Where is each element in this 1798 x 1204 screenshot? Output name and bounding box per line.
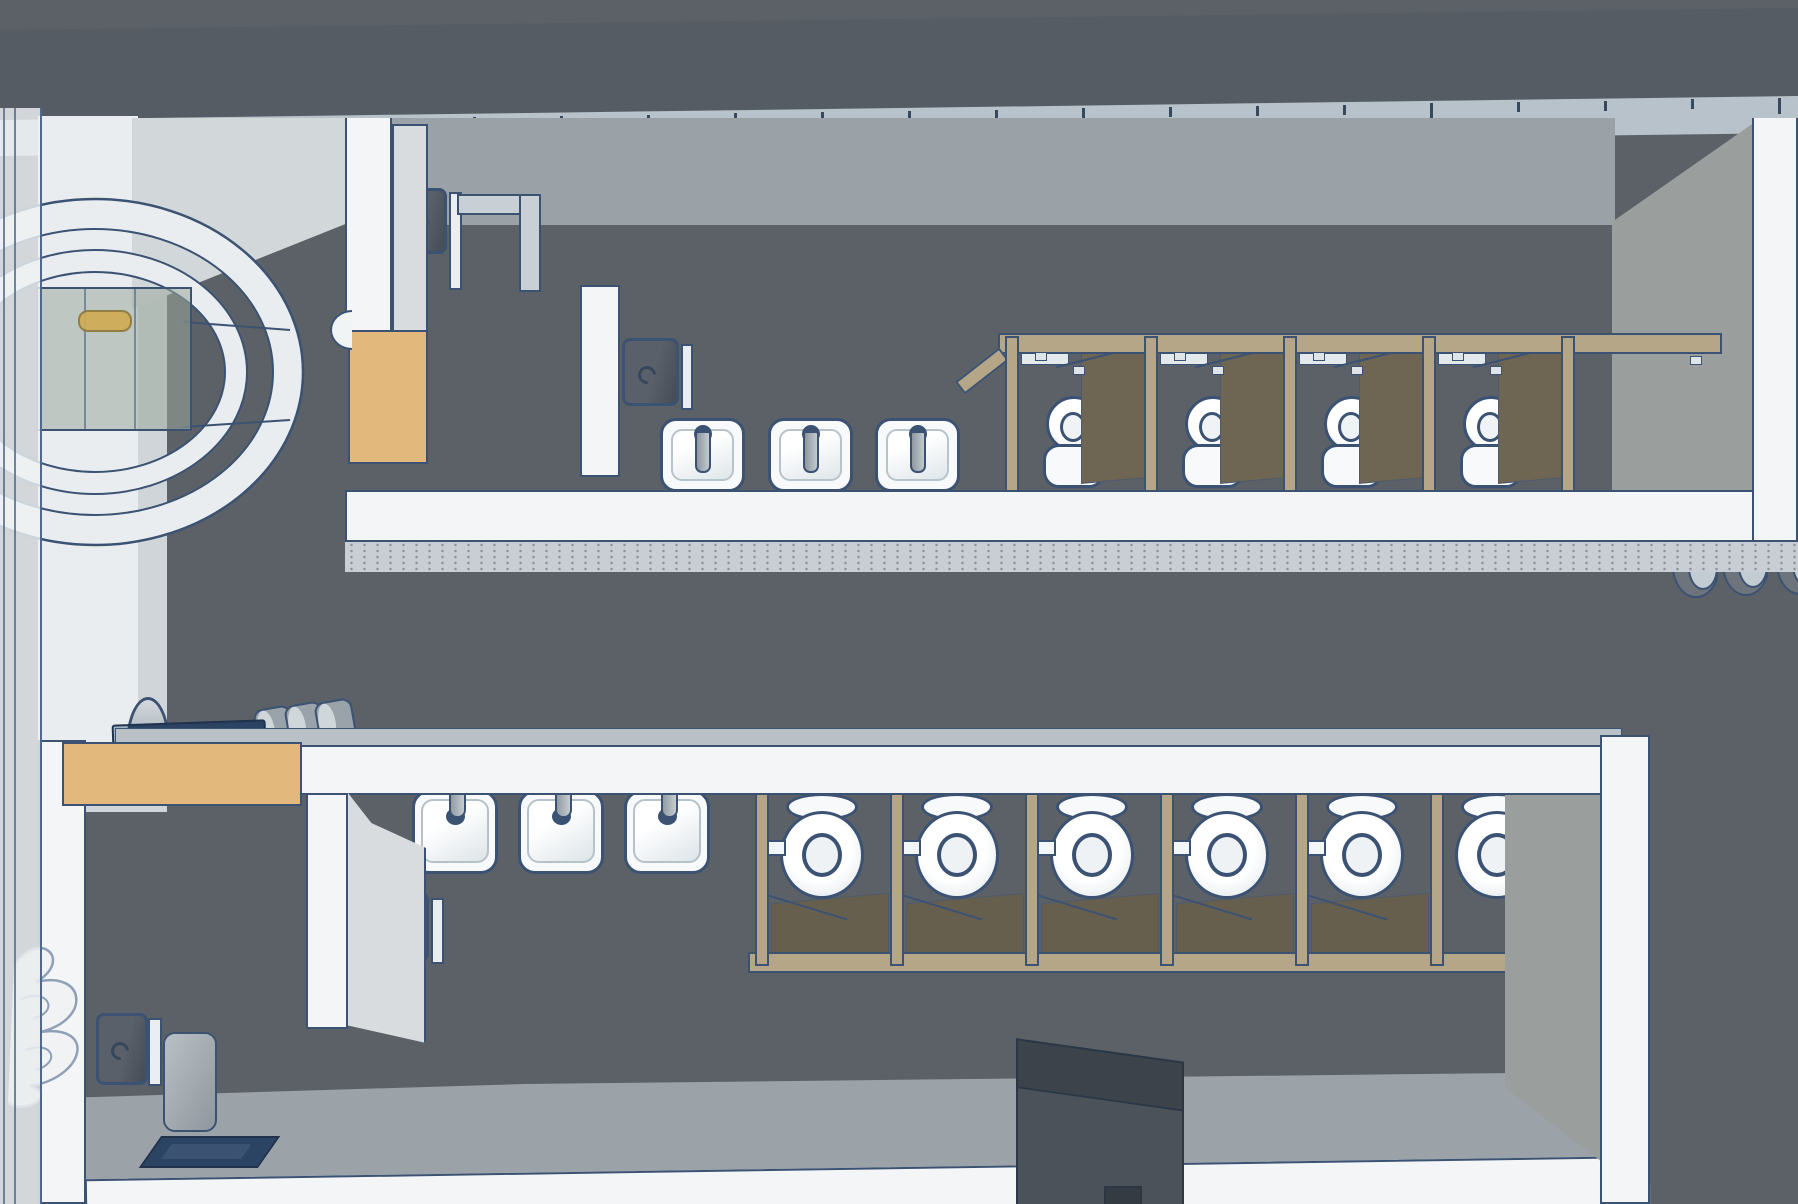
top-room-partition[interactable]: [580, 285, 620, 477]
toilet[interactable]: [1048, 793, 1136, 913]
stall-post[interactable]: [1025, 766, 1039, 966]
glass-front-column[interactable]: [0, 108, 42, 1204]
dryer-mount-panel: [148, 1018, 162, 1086]
toilet[interactable]: [913, 793, 1001, 913]
counter-support-wall[interactable]: [306, 793, 348, 1029]
top-room-left-wall[interactable]: [345, 118, 392, 332]
dryer-mount-panel: [431, 898, 444, 964]
yellow-handle[interactable]: [78, 310, 132, 332]
toilet-paper-holder[interactable]: [1172, 840, 1191, 856]
bottom-room-right-wall[interactable]: [1600, 735, 1650, 1204]
bottom-room-top-wall[interactable]: [300, 745, 1622, 795]
tan-locker-panel[interactable]: [348, 330, 428, 464]
toilet-paper-holder[interactable]: [1037, 840, 1056, 856]
model-viewport: [0, 0, 1798, 1204]
top-room-left-wall-side: [392, 124, 428, 332]
toilet-paper-holder[interactable]: [1307, 840, 1326, 856]
top-room-front-wall[interactable]: [345, 490, 1798, 542]
stall-post[interactable]: [890, 766, 904, 966]
top-room-right-wall[interactable]: [1752, 118, 1798, 542]
storage-box-notch: [1104, 1186, 1142, 1204]
floor-mat[interactable]: [139, 1136, 280, 1168]
toilet-paper-holder[interactable]: [767, 840, 786, 856]
top-room-outer-ledge: [345, 542, 1798, 572]
tan-counter[interactable]: [62, 742, 302, 806]
stall-post[interactable]: [1160, 766, 1174, 966]
toilet-paper-holder[interactable]: [902, 840, 921, 856]
stall-post[interactable]: [755, 766, 769, 966]
toilet[interactable]: [1183, 793, 1271, 913]
toilet[interactable]: [1318, 793, 1406, 913]
stall-post[interactable]: [1295, 766, 1309, 966]
toilet[interactable]: [778, 793, 866, 913]
gray-bin[interactable]: [163, 1032, 217, 1132]
stall-post[interactable]: [1430, 766, 1444, 966]
